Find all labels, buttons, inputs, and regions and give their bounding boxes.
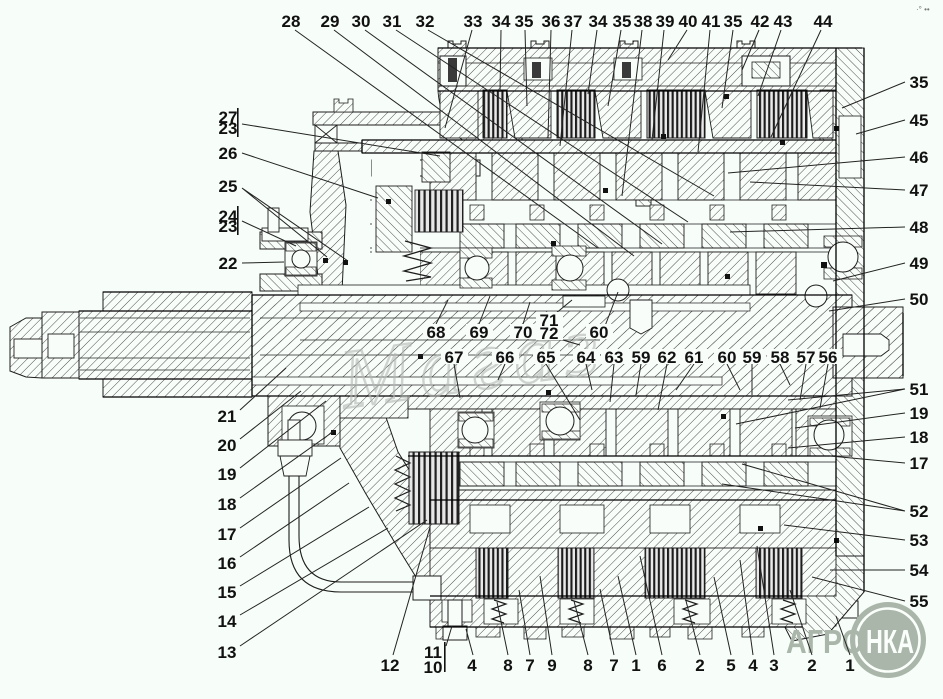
svg-text:35: 35: [613, 12, 632, 31]
svg-text:40: 40: [679, 12, 698, 31]
svg-text:58: 58: [771, 348, 790, 367]
svg-text:32: 32: [416, 12, 435, 31]
svg-text:22: 22: [219, 254, 238, 273]
svg-text:8: 8: [583, 656, 592, 675]
svg-text:1: 1: [845, 656, 854, 675]
svg-text:42: 42: [751, 12, 770, 31]
svg-text:35: 35: [515, 12, 534, 31]
svg-text:61: 61: [685, 348, 704, 367]
svg-text:2: 2: [807, 656, 816, 675]
svg-text:60: 60: [590, 323, 609, 342]
svg-text:47: 47: [910, 181, 929, 200]
svg-text:6: 6: [657, 656, 666, 675]
svg-text:51: 51: [910, 380, 929, 399]
svg-text:54: 54: [910, 561, 929, 580]
svg-text:59: 59: [743, 348, 762, 367]
svg-text:16: 16: [218, 554, 237, 573]
svg-text:2: 2: [695, 656, 704, 675]
svg-text:8: 8: [503, 656, 512, 675]
svg-text:55: 55: [910, 592, 929, 611]
svg-text:21: 21: [218, 407, 237, 426]
svg-text:18: 18: [218, 495, 237, 514]
svg-text:41: 41: [702, 12, 721, 31]
svg-text:НКА: НКА: [866, 623, 914, 660]
svg-text:43: 43: [774, 12, 793, 31]
svg-text:33: 33: [464, 12, 483, 31]
svg-text:60: 60: [718, 348, 737, 367]
svg-text:7: 7: [609, 656, 618, 675]
svg-text:5: 5: [726, 656, 735, 675]
svg-text:35: 35: [910, 73, 929, 92]
svg-text:57: 57: [797, 348, 816, 367]
svg-text:23: 23: [219, 119, 238, 138]
svg-text:14: 14: [218, 612, 237, 631]
svg-text:34: 34: [492, 12, 511, 31]
svg-text:39: 39: [656, 12, 675, 31]
svg-text:12: 12: [381, 656, 400, 675]
svg-text:31: 31: [383, 12, 402, 31]
svg-text:64: 64: [577, 348, 596, 367]
svg-text:46: 46: [910, 148, 929, 167]
svg-text:35: 35: [724, 12, 743, 31]
svg-text:34: 34: [589, 12, 608, 31]
svg-text:56: 56: [819, 348, 838, 367]
svg-text:20: 20: [218, 436, 237, 455]
svg-text:15: 15: [218, 583, 237, 602]
svg-text:13: 13: [218, 643, 237, 662]
svg-text:26: 26: [219, 144, 238, 163]
svg-text:59: 59: [632, 348, 651, 367]
svg-text:18: 18: [910, 428, 929, 447]
svg-text:70: 70: [514, 323, 533, 342]
svg-text:72: 72: [540, 324, 559, 343]
svg-text:30: 30: [352, 12, 371, 31]
svg-text:44: 44: [814, 12, 833, 31]
svg-text:67: 67: [445, 348, 464, 367]
svg-text:50: 50: [910, 290, 929, 309]
svg-text:4: 4: [748, 656, 758, 675]
svg-text:19: 19: [218, 465, 237, 484]
svg-text:52: 52: [910, 502, 929, 521]
svg-text:63: 63: [605, 348, 624, 367]
svg-text:9: 9: [547, 656, 556, 675]
svg-text:·° ••: ·° ••: [916, 5, 930, 14]
svg-text:45: 45: [910, 111, 929, 130]
svg-text:65: 65: [537, 348, 556, 367]
svg-text:АГРО: АГРО: [786, 623, 864, 660]
svg-text:3: 3: [769, 656, 778, 675]
svg-text:37: 37: [564, 12, 583, 31]
svg-text:53: 53: [910, 531, 929, 550]
svg-text:68: 68: [427, 323, 446, 342]
svg-text:62: 62: [658, 348, 677, 367]
svg-text:66: 66: [496, 348, 515, 367]
svg-text:28: 28: [282, 12, 301, 31]
svg-text:23: 23: [219, 217, 238, 236]
svg-text:29: 29: [321, 12, 340, 31]
svg-text:4: 4: [467, 656, 477, 675]
svg-text:10: 10: [424, 658, 443, 677]
svg-text:25: 25: [219, 177, 238, 196]
svg-text:17: 17: [910, 454, 929, 473]
svg-text:69: 69: [470, 323, 489, 342]
svg-text:38: 38: [634, 12, 653, 31]
svg-text:1: 1: [631, 656, 640, 675]
svg-text:7: 7: [525, 656, 534, 675]
svg-text:49: 49: [910, 254, 929, 273]
svg-text:36: 36: [542, 12, 561, 31]
svg-text:19: 19: [910, 404, 929, 423]
svg-text:48: 48: [910, 218, 929, 237]
svg-text:17: 17: [218, 525, 237, 544]
